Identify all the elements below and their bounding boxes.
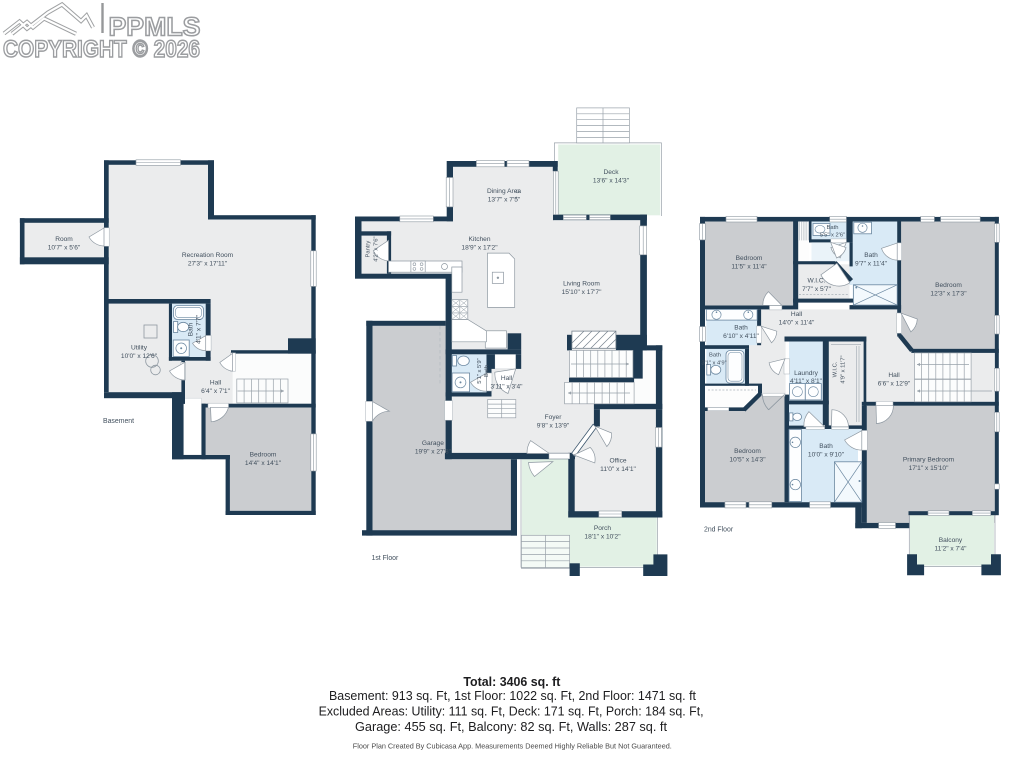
svg-text:11'0" x 14'1": 11'0" x 14'1" [600, 466, 636, 473]
svg-text:18'9" x 17'2": 18'9" x 17'2" [461, 245, 498, 252]
svg-text:5'1" x 5'9": 5'1" x 5'9" [477, 358, 483, 383]
svg-text:10'0" x 12'6": 10'0" x 12'6" [121, 353, 158, 360]
svg-text:Total: 3406 sq. ft: Total: 3406 sq. ft [463, 674, 561, 689]
svg-text:11'2" x 7'4": 11'2" x 7'4" [934, 546, 967, 553]
svg-text:14'4" x 14'1": 14'4" x 14'1" [245, 460, 282, 467]
svg-text:10'7" x 5'6": 10'7" x 5'6" [48, 245, 81, 252]
svg-text:Pantry: Pantry [366, 241, 372, 258]
svg-text:Bath: Bath [484, 365, 490, 377]
svg-text:6'4" x 7'1": 6'4" x 7'1" [201, 388, 230, 395]
svg-text:Utility: Utility [131, 345, 148, 352]
svg-text:Bedroom: Bedroom [935, 282, 962, 289]
svg-text:Garage: Garage [422, 440, 444, 447]
svg-text:Kitchen: Kitchen [469, 236, 491, 243]
svg-text:9'8" x 13'9": 9'8" x 13'9" [537, 423, 570, 430]
svg-text:Office: Office [609, 458, 626, 465]
svg-text:Bath: Bath [827, 225, 839, 231]
svg-text:18'1" x 10'2": 18'1" x 10'2" [584, 534, 621, 541]
svg-text:3'1" x 4'9": 3'1" x 4'9" [701, 361, 726, 367]
svg-text:9'7" x 11'4": 9'7" x 11'4" [855, 261, 888, 268]
svg-text:13'7" x 7'5": 13'7" x 7'5" [488, 197, 521, 204]
svg-text:Bedroom: Bedroom [250, 452, 277, 459]
svg-text:Excluded Areas: Utility: 111 s: Excluded Areas: Utility: 111 sq. Ft, Dec… [319, 704, 704, 719]
svg-text:Bath: Bath [734, 325, 748, 332]
svg-text:14'0" x 11'4": 14'0" x 11'4" [779, 320, 815, 327]
svg-text:15'10" x 17'7": 15'10" x 17'7" [562, 289, 602, 296]
svg-text:Dining Area: Dining Area [487, 188, 521, 195]
svg-text:Hall: Hall [501, 375, 513, 382]
svg-text:Bedroom: Bedroom [734, 448, 761, 455]
svg-text:Hall: Hall [791, 311, 803, 318]
svg-text:10'0" x 9'10": 10'0" x 9'10" [808, 452, 845, 459]
svg-text:4'9" x 11'7": 4'9" x 11'7" [841, 355, 847, 383]
svg-text:Porch: Porch [594, 525, 612, 532]
svg-text:Living Room: Living Room [563, 281, 600, 288]
svg-text:Room: Room [55, 236, 73, 243]
svg-text:11'5" x 11'4": 11'5" x 11'4" [731, 264, 767, 271]
svg-text:Bath: Bath [819, 443, 833, 450]
svg-text:2nd Floor: 2nd Floor [704, 527, 734, 534]
svg-text:COPYRIGHT © 2026: COPYRIGHT © 2026 [3, 36, 200, 63]
svg-text:Floor Plan Created By Cubicasa: Floor Plan Created By Cubicasa App. Meas… [353, 742, 672, 751]
svg-text:Basement: 913 sq. Ft, 1st Floo: Basement: 913 sq. Ft, 1st Floor: 1022 sq… [329, 688, 696, 703]
svg-text:Garage: 455 sq. Ft, Balcony: 8: Garage: 455 sq. Ft, Balcony: 82 sq. Ft, … [355, 719, 667, 734]
svg-text:Laundry: Laundry [794, 370, 819, 377]
svg-text:Hall: Hall [210, 380, 222, 387]
svg-text:4'2" x 7'6": 4'2" x 7'6" [374, 236, 380, 261]
svg-text:27'3" x 17'11": 27'3" x 17'11" [188, 261, 228, 268]
svg-text:5'5" x 2'6": 5'5" x 2'6" [820, 233, 845, 239]
svg-text:1st Floor: 1st Floor [372, 555, 400, 562]
svg-text:4'1" x 7'7": 4'1" x 7'7" [196, 314, 203, 343]
svg-text:Bedroom: Bedroom [736, 255, 763, 262]
svg-text:W.I.C.: W.I.C. [808, 278, 826, 285]
svg-text:3'11" x 3'4": 3'11" x 3'4" [490, 384, 523, 391]
svg-text:Bath: Bath [188, 322, 195, 336]
svg-text:Bath: Bath [709, 353, 721, 359]
svg-text:4'11" x 8'1": 4'11" x 8'1" [790, 378, 823, 385]
svg-text:Balcony: Balcony [939, 537, 963, 544]
svg-text:13'6" x 14'3": 13'6" x 14'3" [593, 178, 630, 185]
svg-text:Deck: Deck [603, 169, 619, 176]
svg-text:Recreation Room: Recreation Room [182, 252, 234, 259]
svg-text:Primary Bedroom: Primary Bedroom [903, 457, 955, 464]
svg-text:6'6" x 12'9": 6'6" x 12'9" [878, 381, 911, 388]
svg-text:19'9" x 27'8": 19'9" x 27'8" [415, 449, 452, 456]
svg-text:6'10" x 4'11": 6'10" x 4'11" [723, 333, 759, 340]
svg-text:Hall: Hall [888, 372, 900, 379]
svg-text:W.I.C.: W.I.C. [833, 361, 839, 377]
svg-text:Bath: Bath [864, 252, 878, 259]
svg-text:17'1" x 15'10": 17'1" x 15'10" [909, 465, 949, 472]
svg-text:7'7" x 5'7": 7'7" x 5'7" [802, 286, 831, 293]
svg-text:10'5" x 14'3": 10'5" x 14'3" [729, 457, 766, 464]
svg-text:Basement: Basement [103, 418, 134, 425]
svg-text:Foyer: Foyer [545, 414, 563, 421]
svg-text:12'3" x 17'3": 12'3" x 17'3" [930, 291, 967, 298]
